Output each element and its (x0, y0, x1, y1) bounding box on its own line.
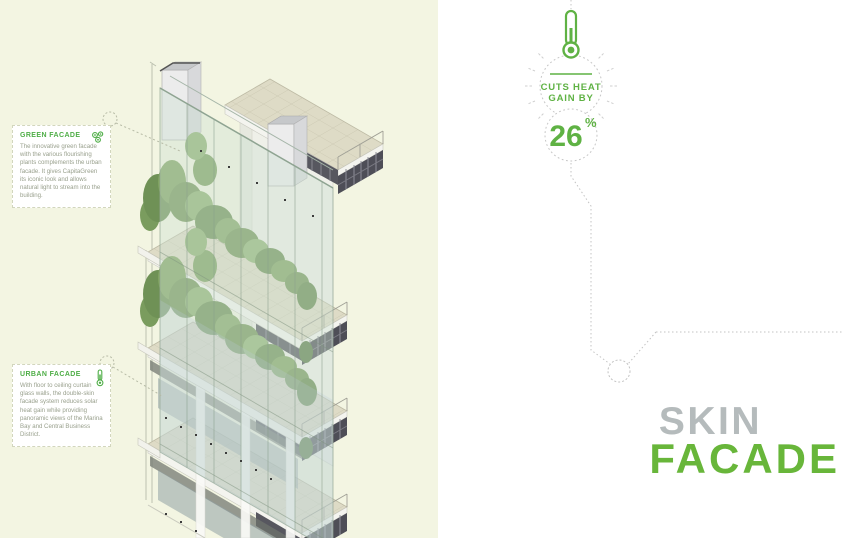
stat-heading-line1: CUTS HEAT (541, 82, 602, 93)
thermometer-large-icon (564, 11, 579, 58)
stat-value: 26 (549, 120, 582, 153)
stat-unit: % (585, 115, 597, 130)
callout-urban-facade: URBAN FACADE With floor to ceiling curta… (12, 364, 111, 447)
info-panel: CUTS HEAT GAIN BY 26 % The double-skin f… (438, 0, 848, 538)
stat-heading-line2: GAIN BY (548, 93, 593, 104)
thermometer-icon (95, 369, 105, 392)
title-line-facade: FACADE (649, 438, 840, 480)
flowers-icon (90, 130, 105, 150)
callout-urban-facade-body: With floor to ceiling curtain glass wall… (20, 382, 104, 439)
dotted-connectors (571, 163, 843, 382)
illustration-panel: GREEN FACADE The innovative green facade… (0, 0, 438, 538)
callout-green-facade-body: The innovative green facade with the var… (20, 143, 104, 200)
infographic-page: GREEN FACADE The innovative green facade… (0, 0, 848, 538)
callout-urban-facade-title: URBAN FACADE (20, 371, 104, 378)
callout-green-facade: GREEN FACADE The innovative green facade… (12, 125, 111, 208)
building-illustration (0, 0, 438, 538)
